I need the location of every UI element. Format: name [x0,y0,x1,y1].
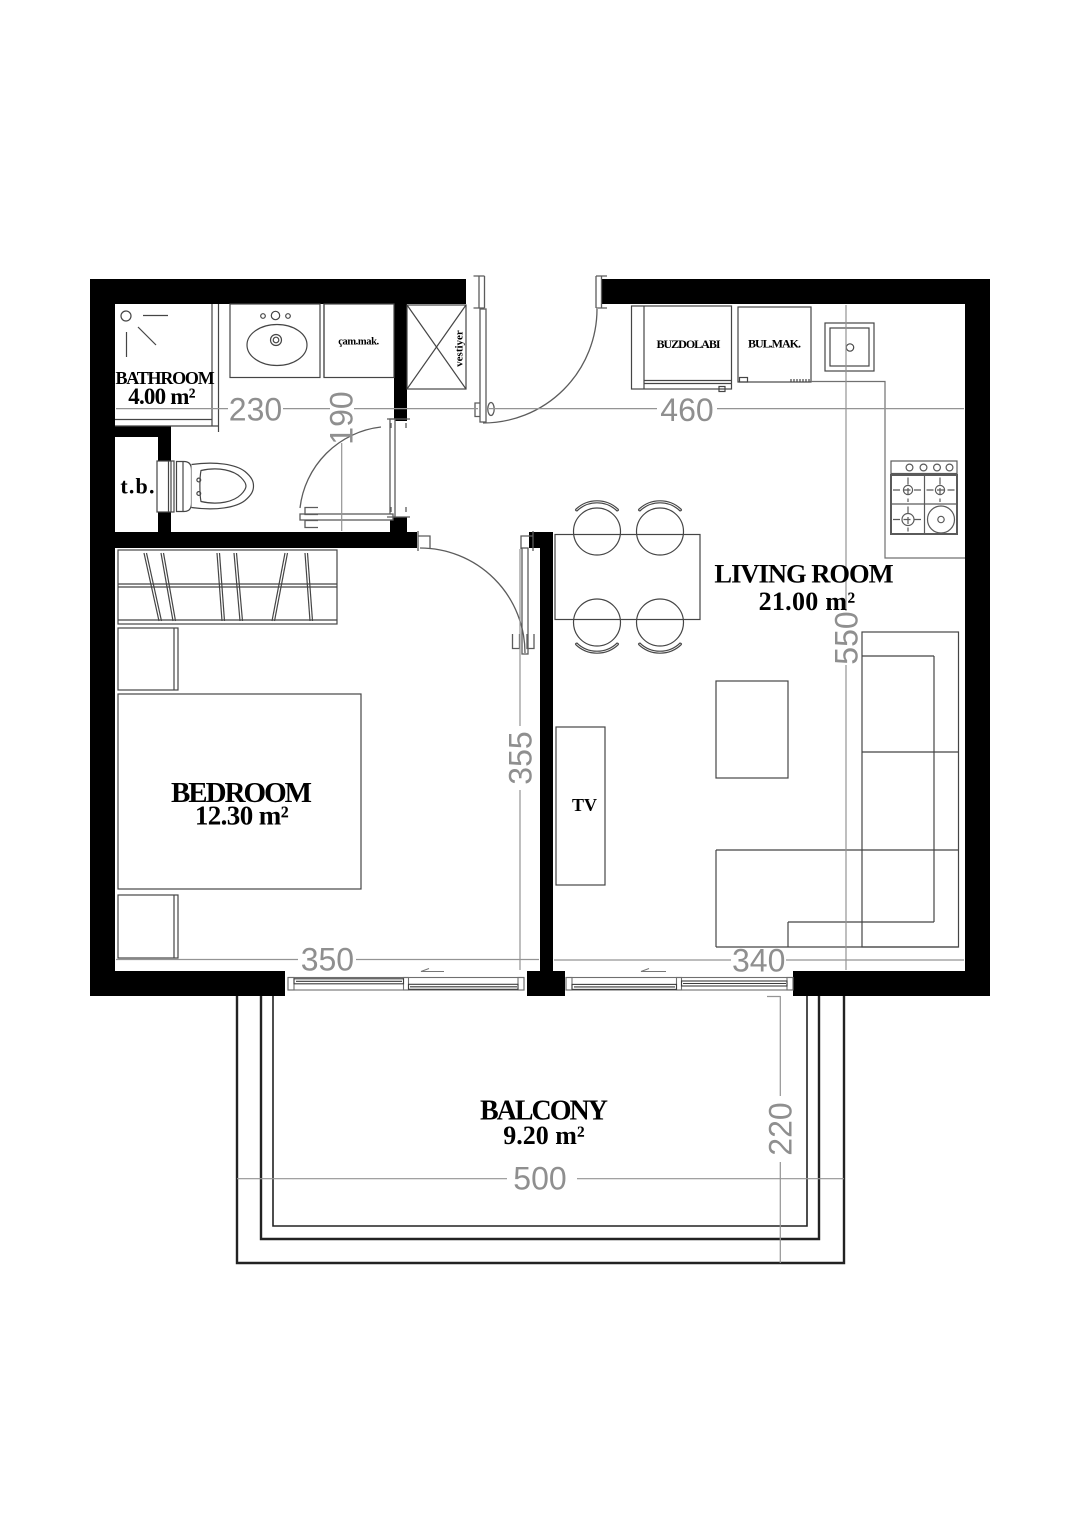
svg-text:21.00 m²: 21.00 m² [759,587,856,616]
svg-text:BUZDOLABI: BUZDOLABI [656,337,720,351]
svg-text:4.00 m²: 4.00 m² [128,384,195,409]
svg-text:12.30 m²: 12.30 m² [195,801,289,831]
svg-text:550: 550 [829,611,865,664]
svg-text:355: 355 [503,731,539,784]
svg-text:9.20 m²: 9.20 m² [503,1121,585,1150]
svg-text:çam.mak.: çam.mak. [338,337,379,348]
svg-text:230: 230 [229,392,282,428]
svg-text:220: 220 [763,1102,799,1155]
svg-text:190: 190 [324,391,360,444]
svg-text:500: 500 [513,1161,566,1197]
svg-text:LIVING ROOM: LIVING ROOM [714,559,893,589]
svg-text:TV: TV [572,795,597,815]
svg-text:350: 350 [301,942,354,978]
svg-text:t.b.: t.b. [120,474,155,499]
svg-text:340: 340 [732,943,785,979]
svg-text:BUL.MAK.: BUL.MAK. [748,337,801,351]
svg-text:vestiyer: vestiyer [454,330,466,367]
svg-text:460: 460 [660,392,713,428]
